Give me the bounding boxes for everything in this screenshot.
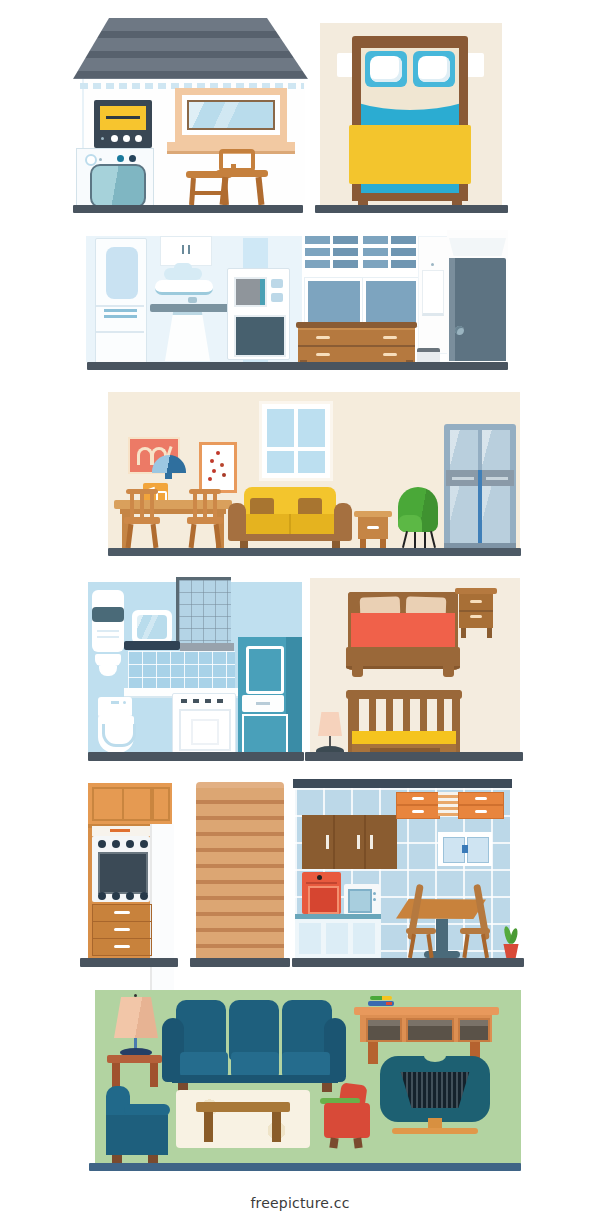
countertop-microwave <box>344 884 380 915</box>
gray-ledge <box>180 643 234 651</box>
floor-bathroom <box>88 752 304 761</box>
sofa-back-cushion <box>229 1000 279 1060</box>
sofa-base <box>236 534 344 541</box>
drawer-handle <box>114 928 130 931</box>
wall-column <box>418 236 449 354</box>
sofa-base <box>172 1075 338 1083</box>
wardrobe-panel <box>450 430 478 470</box>
washer-drum <box>90 164 146 208</box>
window-pane <box>363 278 419 326</box>
drawer-handle <box>316 353 330 356</box>
tiled-splashback <box>128 651 235 690</box>
bed-blanket <box>349 125 471 184</box>
washer-button <box>129 155 136 162</box>
sofa-seat-cushion <box>231 1052 279 1077</box>
oven-knob <box>140 892 148 900</box>
dishwasher <box>172 693 236 755</box>
oven-knob <box>112 892 120 900</box>
book-stack-bottom <box>368 1001 394 1006</box>
door-knob <box>455 326 464 335</box>
wardrobe-handle <box>486 477 508 480</box>
heater-line <box>97 636 119 638</box>
cabinet-handle <box>370 835 373 849</box>
brand-label-strip <box>92 826 150 836</box>
window-slats <box>363 236 388 270</box>
chair-spindle <box>140 494 144 518</box>
floor-house <box>73 205 303 213</box>
window-pane <box>298 409 325 447</box>
fridge <box>95 238 147 364</box>
cabinet-handle <box>326 835 329 849</box>
dark-shelf <box>124 641 180 650</box>
fridge-divider <box>96 331 144 333</box>
console-top <box>354 1007 499 1015</box>
nightstand-leg <box>461 628 466 638</box>
oven-knob <box>140 840 148 848</box>
washer-button <box>117 155 124 162</box>
wooden-staircase <box>196 782 284 964</box>
wall-cabinet-orange <box>458 792 504 819</box>
lamp-base <box>165 473 172 479</box>
window-inner-frame <box>182 95 280 135</box>
nightstand-leg <box>487 628 492 638</box>
lamp-top-dot <box>134 994 137 997</box>
lamp-shade <box>318 712 342 736</box>
washing-machine <box>76 148 154 207</box>
lamp-table-leg <box>112 1063 120 1087</box>
oven-knob <box>98 892 106 900</box>
crib-slats <box>352 699 456 732</box>
oven-cabinet-unit <box>88 783 172 958</box>
oven-knob <box>98 840 106 848</box>
microwave-button <box>373 898 376 901</box>
kitchen-shelf <box>155 280 213 295</box>
teal-cabinet-drawer <box>242 695 284 712</box>
wing-chair-seat <box>398 515 422 532</box>
red-chair-leg <box>353 1137 362 1148</box>
window-slats <box>391 236 416 270</box>
stove-knobs <box>94 134 152 144</box>
tv-stand-base <box>392 1128 478 1134</box>
fridge-towel <box>104 309 137 312</box>
floor-oven-unit <box>80 958 178 967</box>
oven-knob <box>126 840 134 848</box>
bed-leg <box>352 666 363 677</box>
ladder-shelf <box>438 792 458 816</box>
red-chair-leg <box>329 1137 338 1148</box>
book-stack-top <box>370 996 392 1000</box>
drawer-divider <box>459 804 503 806</box>
side-table-body <box>358 517 388 539</box>
toilet-bowl <box>98 716 134 753</box>
wall-cabinet-brown <box>302 815 397 869</box>
console-window <box>458 1018 490 1042</box>
drawer <box>92 904 152 922</box>
toilet-tank <box>98 697 132 718</box>
cabinet-divider <box>333 815 335 869</box>
red-oven-window <box>308 886 339 914</box>
watermark-text: freepicture.cc <box>0 1195 600 1211</box>
oven-dot <box>317 875 322 880</box>
dishwasher-door <box>179 709 231 751</box>
sofa-leg <box>240 541 248 548</box>
cabinet-door-narrow <box>152 787 170 821</box>
stove-display-line <box>106 116 140 119</box>
brand-mark <box>110 829 130 832</box>
wardrobe-handle <box>452 477 474 480</box>
house-roof <box>63 18 313 80</box>
wardrobe-panel <box>482 486 510 543</box>
console-window <box>366 1018 402 1042</box>
microwave-buttons <box>271 279 283 288</box>
floor-tiled-kitchen <box>292 958 524 967</box>
oven-knob <box>126 892 134 900</box>
drawer-handle <box>470 600 482 603</box>
door-inner-outline <box>191 719 219 745</box>
fridge-divider <box>96 305 144 307</box>
crib-top-rail <box>346 690 462 699</box>
cabinet-panel <box>299 923 321 954</box>
drawer-divider <box>298 345 415 347</box>
seat-seam <box>289 514 291 534</box>
entry-door-frame <box>447 230 508 362</box>
chair-spindle <box>150 494 154 518</box>
console-body <box>360 1015 492 1042</box>
toy-car <box>164 268 202 280</box>
coral-blanket <box>351 613 455 649</box>
sofa-seat-cushion <box>180 1052 228 1077</box>
side-table-leg <box>360 539 366 548</box>
drawer-handle <box>470 615 482 618</box>
sofa-seat <box>244 514 338 534</box>
floor-bedroom <box>315 205 508 213</box>
drawer-handle <box>475 797 487 800</box>
window-pane <box>298 451 325 473</box>
knob <box>135 135 142 142</box>
wall-basin <box>95 654 121 666</box>
drawer-handle <box>475 810 487 813</box>
drawer-handle <box>412 797 424 800</box>
pillow-cushion <box>370 56 402 82</box>
window-latch <box>462 845 468 853</box>
dot <box>216 451 220 455</box>
heater-line <box>97 630 119 632</box>
lamp-table-top <box>107 1055 162 1063</box>
cabinet-panel <box>353 923 375 954</box>
coffee-table-leg <box>204 1112 213 1142</box>
teal-cabinet-door-outline <box>246 646 284 694</box>
sofa-leg <box>332 541 340 548</box>
microwave-window <box>348 889 372 913</box>
teal-cabinet <box>238 637 302 755</box>
paper-towel <box>422 270 444 316</box>
floor-living <box>108 548 521 556</box>
stove-display <box>100 106 146 130</box>
teal-cabinet-door <box>242 714 288 756</box>
chair-spindle <box>203 494 207 518</box>
cabinet-handle <box>188 245 190 254</box>
table-top-perspective <box>396 899 486 919</box>
drawer-divider <box>459 610 493 612</box>
chair-leg-metal <box>414 532 416 548</box>
lamp-table-leg <box>150 1063 158 1087</box>
drawer-handle <box>367 526 379 529</box>
flush-button <box>111 701 119 704</box>
microwave-window-teal <box>260 277 267 307</box>
chair-seat <box>406 928 436 934</box>
cabinet-handle <box>182 245 184 254</box>
wardrobe <box>444 424 516 551</box>
cabinet-handle <box>357 835 360 849</box>
coffee-table-leg <box>272 1112 281 1142</box>
pillow <box>365 51 407 87</box>
sink-faucet <box>188 297 197 303</box>
floor-staircase <box>190 958 290 967</box>
chair-spindle <box>130 494 134 518</box>
red-chair-body <box>324 1103 370 1138</box>
mirror-glass <box>137 615 167 639</box>
console-window <box>406 1018 454 1042</box>
drawer-divider <box>397 804 439 806</box>
plant-leaf <box>509 928 519 945</box>
bed-leg <box>443 666 454 677</box>
coffee-table-top <box>196 1102 290 1112</box>
drawer-handle <box>316 336 330 339</box>
chair-spindle <box>193 494 197 518</box>
drawer-handle <box>383 353 397 356</box>
chair-back <box>219 149 255 172</box>
oven-window <box>98 852 148 894</box>
shower-glass <box>176 577 231 646</box>
wardrobe-center-stripe <box>478 470 482 543</box>
microwave-oven-unit <box>227 268 290 360</box>
window-pane <box>267 409 294 447</box>
lamp-shade <box>114 997 158 1038</box>
area-rug <box>176 1090 310 1148</box>
stove-control-panel <box>94 100 152 148</box>
drawer-handle <box>114 945 130 948</box>
door-lintel <box>449 238 506 256</box>
console-leg <box>368 1042 378 1064</box>
drawer <box>92 938 152 956</box>
wall-cabinet-orange <box>396 792 440 819</box>
red-oven <box>302 872 341 914</box>
tv-top-notch <box>424 1050 446 1062</box>
window-slats <box>305 236 330 270</box>
chair-leg-metal <box>424 532 426 548</box>
exterior-window <box>175 88 287 142</box>
chair-spindle <box>213 494 217 518</box>
bathroom-mirror <box>132 610 172 644</box>
oven-knob <box>112 840 120 848</box>
window-slats <box>333 236 358 270</box>
fridge-column <box>150 824 174 996</box>
microwave-button <box>373 892 376 895</box>
door <box>449 258 506 361</box>
wardrobe-panel <box>450 486 478 543</box>
drawer-stack <box>92 904 150 956</box>
base-cabinets <box>295 919 381 958</box>
cabinet-panel <box>326 923 348 954</box>
drawer-handle <box>256 702 270 705</box>
dresser-body <box>298 328 415 362</box>
drawer-handle <box>412 810 424 813</box>
microwave-buttons <box>271 293 283 302</box>
window-pane <box>305 278 363 326</box>
floor-bedroom2 <box>305 752 523 761</box>
fridge-towel <box>104 315 137 318</box>
built-in-oven <box>92 836 150 902</box>
sofa-seat-cushion <box>282 1052 330 1077</box>
upper-cabinet-doors <box>88 783 172 828</box>
oven-handle <box>306 882 337 884</box>
wall-art-dots <box>199 442 237 493</box>
washer-dot <box>99 158 102 161</box>
pillow-cushion <box>418 56 450 82</box>
wardrobe-panel <box>482 430 510 470</box>
window-glass <box>187 100 275 130</box>
drawer <box>92 921 152 939</box>
table-apron <box>120 509 226 514</box>
knob-dot <box>101 137 104 140</box>
sofa-leg <box>322 1083 332 1092</box>
nightstand-body <box>459 594 493 628</box>
cabinet-door <box>122 787 152 821</box>
bed-footboard <box>352 193 468 201</box>
upper-cabinet <box>160 236 212 266</box>
window-pane <box>467 837 489 863</box>
floor-green-room <box>89 1163 521 1171</box>
floor-kitchen-hallway <box>87 362 508 370</box>
illustration-canvas: freepicture.cc <box>0 0 600 1220</box>
crib-yellow-band <box>352 731 456 744</box>
oven-window <box>234 315 286 357</box>
dishwasher-controls <box>181 699 225 703</box>
heater-band <box>92 607 124 622</box>
living-window <box>262 404 330 478</box>
kitchen-ceiling <box>293 779 512 788</box>
drawer-handle <box>114 911 130 914</box>
teal-cabinet-side <box>286 637 302 755</box>
drawer-handle <box>383 336 397 339</box>
door-highlight <box>449 258 455 361</box>
hook-dot <box>431 263 434 266</box>
table-pedestal <box>436 919 448 953</box>
cabinet-divider <box>364 815 366 869</box>
tank-dot <box>123 701 126 704</box>
cabinet-door <box>92 787 124 821</box>
book-accent <box>386 1002 392 1005</box>
toy-car-cabin <box>174 263 192 271</box>
kitchen-window <box>438 832 492 866</box>
pillow <box>413 51 455 87</box>
kitchen-counter <box>150 304 232 312</box>
armchair-seat <box>106 1115 168 1155</box>
knob <box>123 135 130 142</box>
knob <box>111 135 118 142</box>
side-table-leg <box>380 539 386 548</box>
window-pane <box>267 451 294 473</box>
water-heater <box>92 590 124 652</box>
chair-seat <box>460 928 490 934</box>
fridge-door-panel <box>106 247 138 299</box>
bowl-curve <box>102 724 136 747</box>
